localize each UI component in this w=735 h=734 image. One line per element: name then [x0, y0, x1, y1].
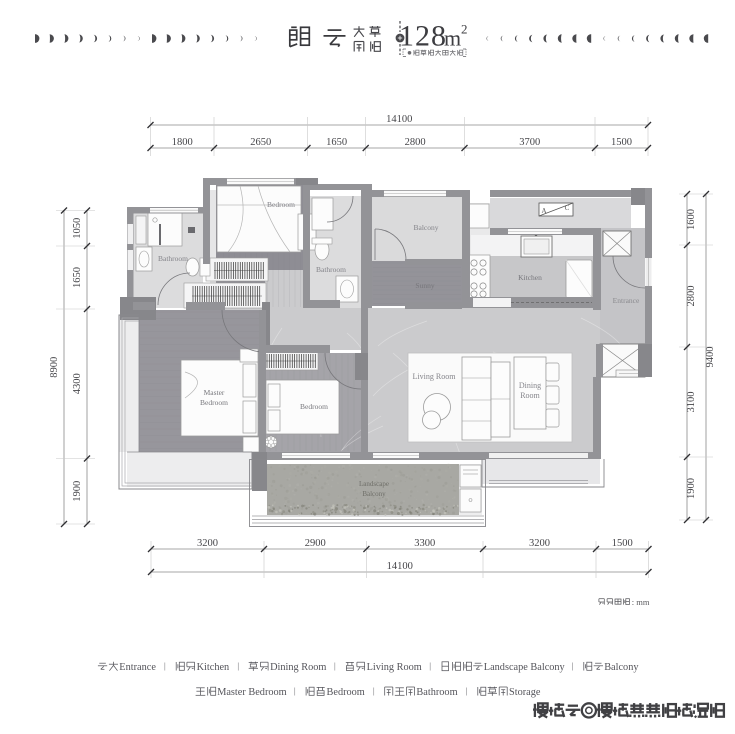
- svg-text:14100: 14100: [386, 114, 412, 125]
- svg-text:Balcony: Balcony: [604, 662, 639, 673]
- svg-text:3200: 3200: [529, 538, 550, 549]
- svg-text:3700: 3700: [519, 137, 540, 148]
- svg-text:: mm: : mm: [632, 597, 650, 607]
- svg-text:1900: 1900: [686, 478, 697, 499]
- svg-text:C: C: [565, 204, 570, 212]
- svg-text:Bathroom: Bathroom: [416, 687, 457, 698]
- svg-text:128: 128: [399, 20, 447, 53]
- svg-text:Dining: Dining: [519, 381, 541, 390]
- svg-text:3100: 3100: [686, 392, 697, 413]
- svg-text:1800: 1800: [172, 137, 193, 148]
- svg-text:Balcony: Balcony: [362, 490, 386, 498]
- svg-text:1500: 1500: [611, 137, 632, 148]
- svg-text:3200: 3200: [197, 538, 218, 549]
- svg-text:Master: Master: [204, 388, 225, 397]
- svg-text:Kitchen: Kitchen: [197, 662, 230, 673]
- svg-text:1650: 1650: [72, 267, 83, 288]
- svg-text:Bathroom: Bathroom: [158, 254, 188, 263]
- svg-text:Storage: Storage: [509, 687, 541, 698]
- svg-text:4300: 4300: [72, 373, 83, 394]
- svg-text:2800: 2800: [686, 286, 697, 307]
- svg-text:m: m: [444, 26, 461, 51]
- svg-text:Bedroom: Bedroom: [200, 398, 228, 407]
- svg-text:Bedroom: Bedroom: [327, 687, 365, 698]
- svg-text:Entrance: Entrance: [613, 296, 640, 305]
- svg-text:2650: 2650: [250, 137, 271, 148]
- svg-text:Balcony: Balcony: [414, 223, 439, 232]
- svg-text:Landscape: Landscape: [359, 480, 389, 488]
- svg-text:1500: 1500: [612, 538, 633, 549]
- svg-text:Room: Room: [520, 391, 540, 400]
- svg-text:1650: 1650: [326, 137, 347, 148]
- svg-text:9400: 9400: [705, 347, 716, 368]
- svg-text:2900: 2900: [305, 538, 326, 549]
- svg-text:Living Room: Living Room: [367, 662, 422, 673]
- svg-text:Kitchen: Kitchen: [518, 273, 542, 282]
- svg-text:Landscape Balcony: Landscape Balcony: [484, 662, 566, 673]
- svg-text:14100: 14100: [387, 561, 413, 572]
- svg-text:Bathroom: Bathroom: [316, 265, 346, 274]
- svg-text:3300: 3300: [414, 538, 435, 549]
- svg-text:2800: 2800: [405, 137, 426, 148]
- svg-text:Master Bedroom: Master Bedroom: [217, 687, 287, 698]
- svg-text:1600: 1600: [686, 209, 697, 230]
- svg-text:Bedroom: Bedroom: [267, 200, 295, 209]
- svg-text:Entrance: Entrance: [119, 662, 156, 673]
- svg-text:A: A: [541, 207, 546, 215]
- svg-text:8900: 8900: [49, 357, 60, 378]
- svg-text:Living Room: Living Room: [413, 372, 457, 381]
- svg-text:Sunny: Sunny: [415, 281, 434, 290]
- svg-text:Bedroom: Bedroom: [300, 402, 328, 411]
- svg-text:1900: 1900: [72, 481, 83, 502]
- svg-text:Dining Room: Dining Room: [270, 662, 326, 673]
- svg-text:1050: 1050: [72, 218, 83, 239]
- svg-text:2: 2: [461, 22, 468, 37]
